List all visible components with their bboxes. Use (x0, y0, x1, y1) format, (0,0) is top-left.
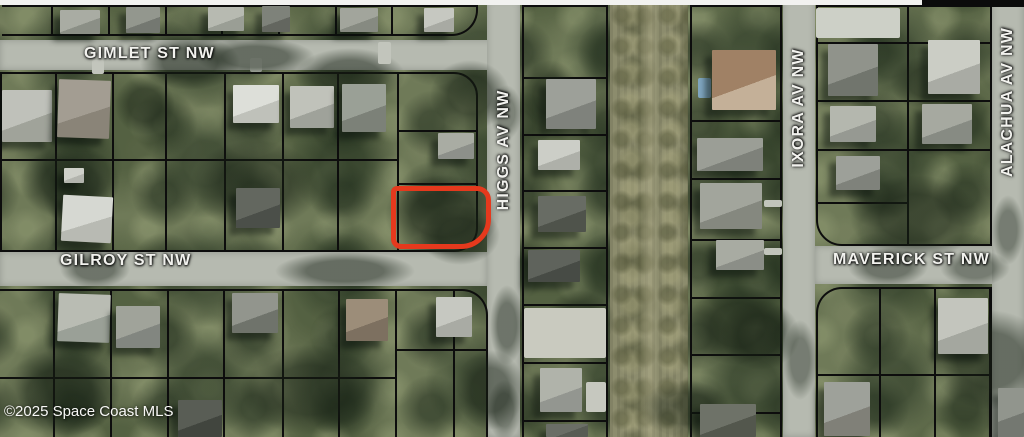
house-roof (998, 388, 1024, 437)
house-roof (438, 133, 474, 159)
house-roof (697, 138, 763, 171)
house-roof (436, 297, 472, 337)
house-roof (208, 7, 244, 31)
house-roof (538, 196, 586, 232)
street-label-alachua: ALACHUA AV NW (999, 27, 1017, 177)
highlighted-parcel-outline (391, 186, 491, 249)
house-roof (700, 404, 756, 437)
aerial-map: GIMLET ST NWGILROY ST NWMAVERICK ST NWHI… (0, 0, 1024, 437)
driveway-patch (586, 382, 606, 412)
house-roof (290, 86, 334, 128)
parcel-line (524, 134, 608, 136)
house-roof (546, 79, 596, 129)
parcel-line (692, 120, 782, 122)
house-roof (346, 299, 388, 341)
house-roof (236, 188, 280, 228)
tree-canopy (490, 285, 524, 365)
parcel-line (108, 7, 110, 34)
house-roof (178, 400, 222, 437)
map-attribution: ©2025 Space Coast MLS (4, 403, 173, 420)
house-roof (57, 293, 111, 343)
street-label-gimlet: GIMLET ST NW (84, 45, 215, 63)
parcel-line (397, 130, 478, 132)
cleared-lot-patch (816, 8, 900, 38)
parcel-line (395, 291, 397, 437)
house-roof (233, 85, 279, 123)
tree-canopy (275, 252, 415, 290)
house-roof (528, 250, 580, 282)
tree-canopy (0, 350, 120, 437)
parcel-line (395, 349, 488, 351)
house-roof (546, 424, 588, 437)
parcel-line (165, 7, 167, 34)
house-roof (938, 298, 988, 354)
house-roof (232, 293, 278, 333)
house-roof (836, 156, 880, 190)
parcel-line (524, 420, 608, 422)
house-roof (60, 10, 100, 34)
driveway-patch (378, 42, 391, 64)
tree-canopy (115, 75, 175, 135)
parcel-line (223, 291, 225, 437)
parcel-line (524, 362, 608, 364)
house-roof (828, 44, 878, 96)
tree-canopy (783, 320, 817, 400)
house-roof (928, 40, 980, 94)
house-roof (61, 195, 113, 244)
house-roof (922, 104, 972, 144)
street-label-gilroy: GILROY ST NW (60, 252, 191, 270)
parcel-line (335, 7, 337, 34)
parcel-line (692, 178, 782, 180)
house-roof (712, 50, 776, 110)
street-label-higgs: HIGGS AV NW (495, 90, 513, 211)
house-roof (57, 79, 111, 139)
vacant-corridor-strip (610, 0, 688, 437)
house-roof (342, 84, 386, 132)
driveway-patch (764, 200, 782, 207)
house-roof (824, 382, 870, 436)
street-label-ixora: IXORA AV NW (790, 48, 808, 167)
house-roof (2, 90, 52, 142)
top-border-strip-white (0, 0, 922, 5)
driveway-patch (764, 248, 782, 255)
tree-canopy (992, 195, 1024, 265)
house-roof (64, 168, 84, 183)
house-roof (340, 8, 378, 32)
parcel-line (879, 289, 881, 437)
house-roof (540, 368, 582, 412)
parcel-line (818, 149, 992, 151)
tree-canopy (240, 345, 380, 435)
house-roof (830, 106, 876, 142)
house-roof (424, 8, 454, 32)
street-label-maverick: MAVERICK ST NW (833, 251, 990, 269)
house-roof (126, 7, 160, 33)
top-border-strip-black (922, 0, 1024, 7)
tree-canopy (487, 380, 521, 437)
house-roof (538, 140, 580, 170)
parcel-line (51, 7, 53, 34)
cleared-lot-patch (524, 308, 606, 358)
parcel-line (524, 247, 608, 249)
house-roof (716, 240, 764, 270)
house-roof (262, 6, 290, 32)
house-roof (116, 306, 160, 348)
parcel-line (524, 190, 608, 192)
parcel-line (391, 7, 393, 34)
house-roof (700, 183, 762, 229)
swimming-pool (698, 78, 711, 98)
